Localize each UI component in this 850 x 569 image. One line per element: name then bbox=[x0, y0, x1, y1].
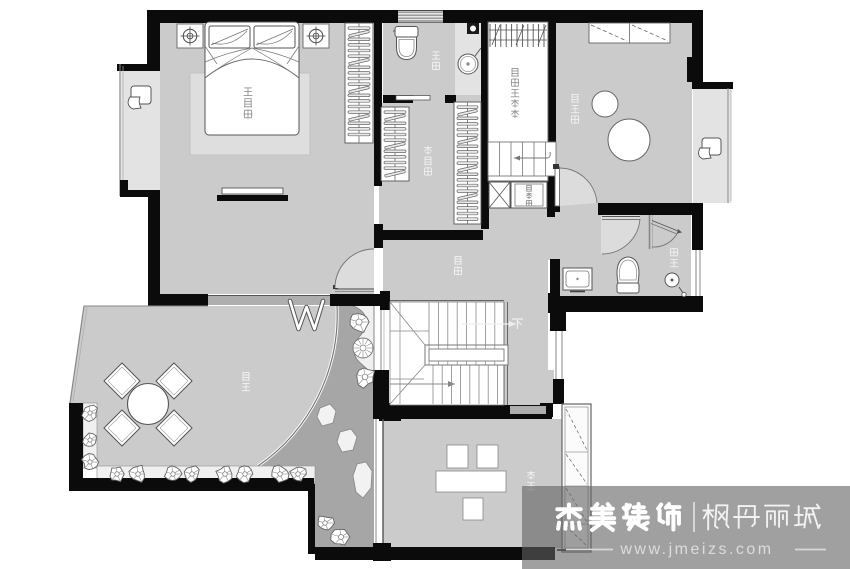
svg-text:www.jmeizs.com: www.jmeizs.com bbox=[619, 541, 773, 558]
